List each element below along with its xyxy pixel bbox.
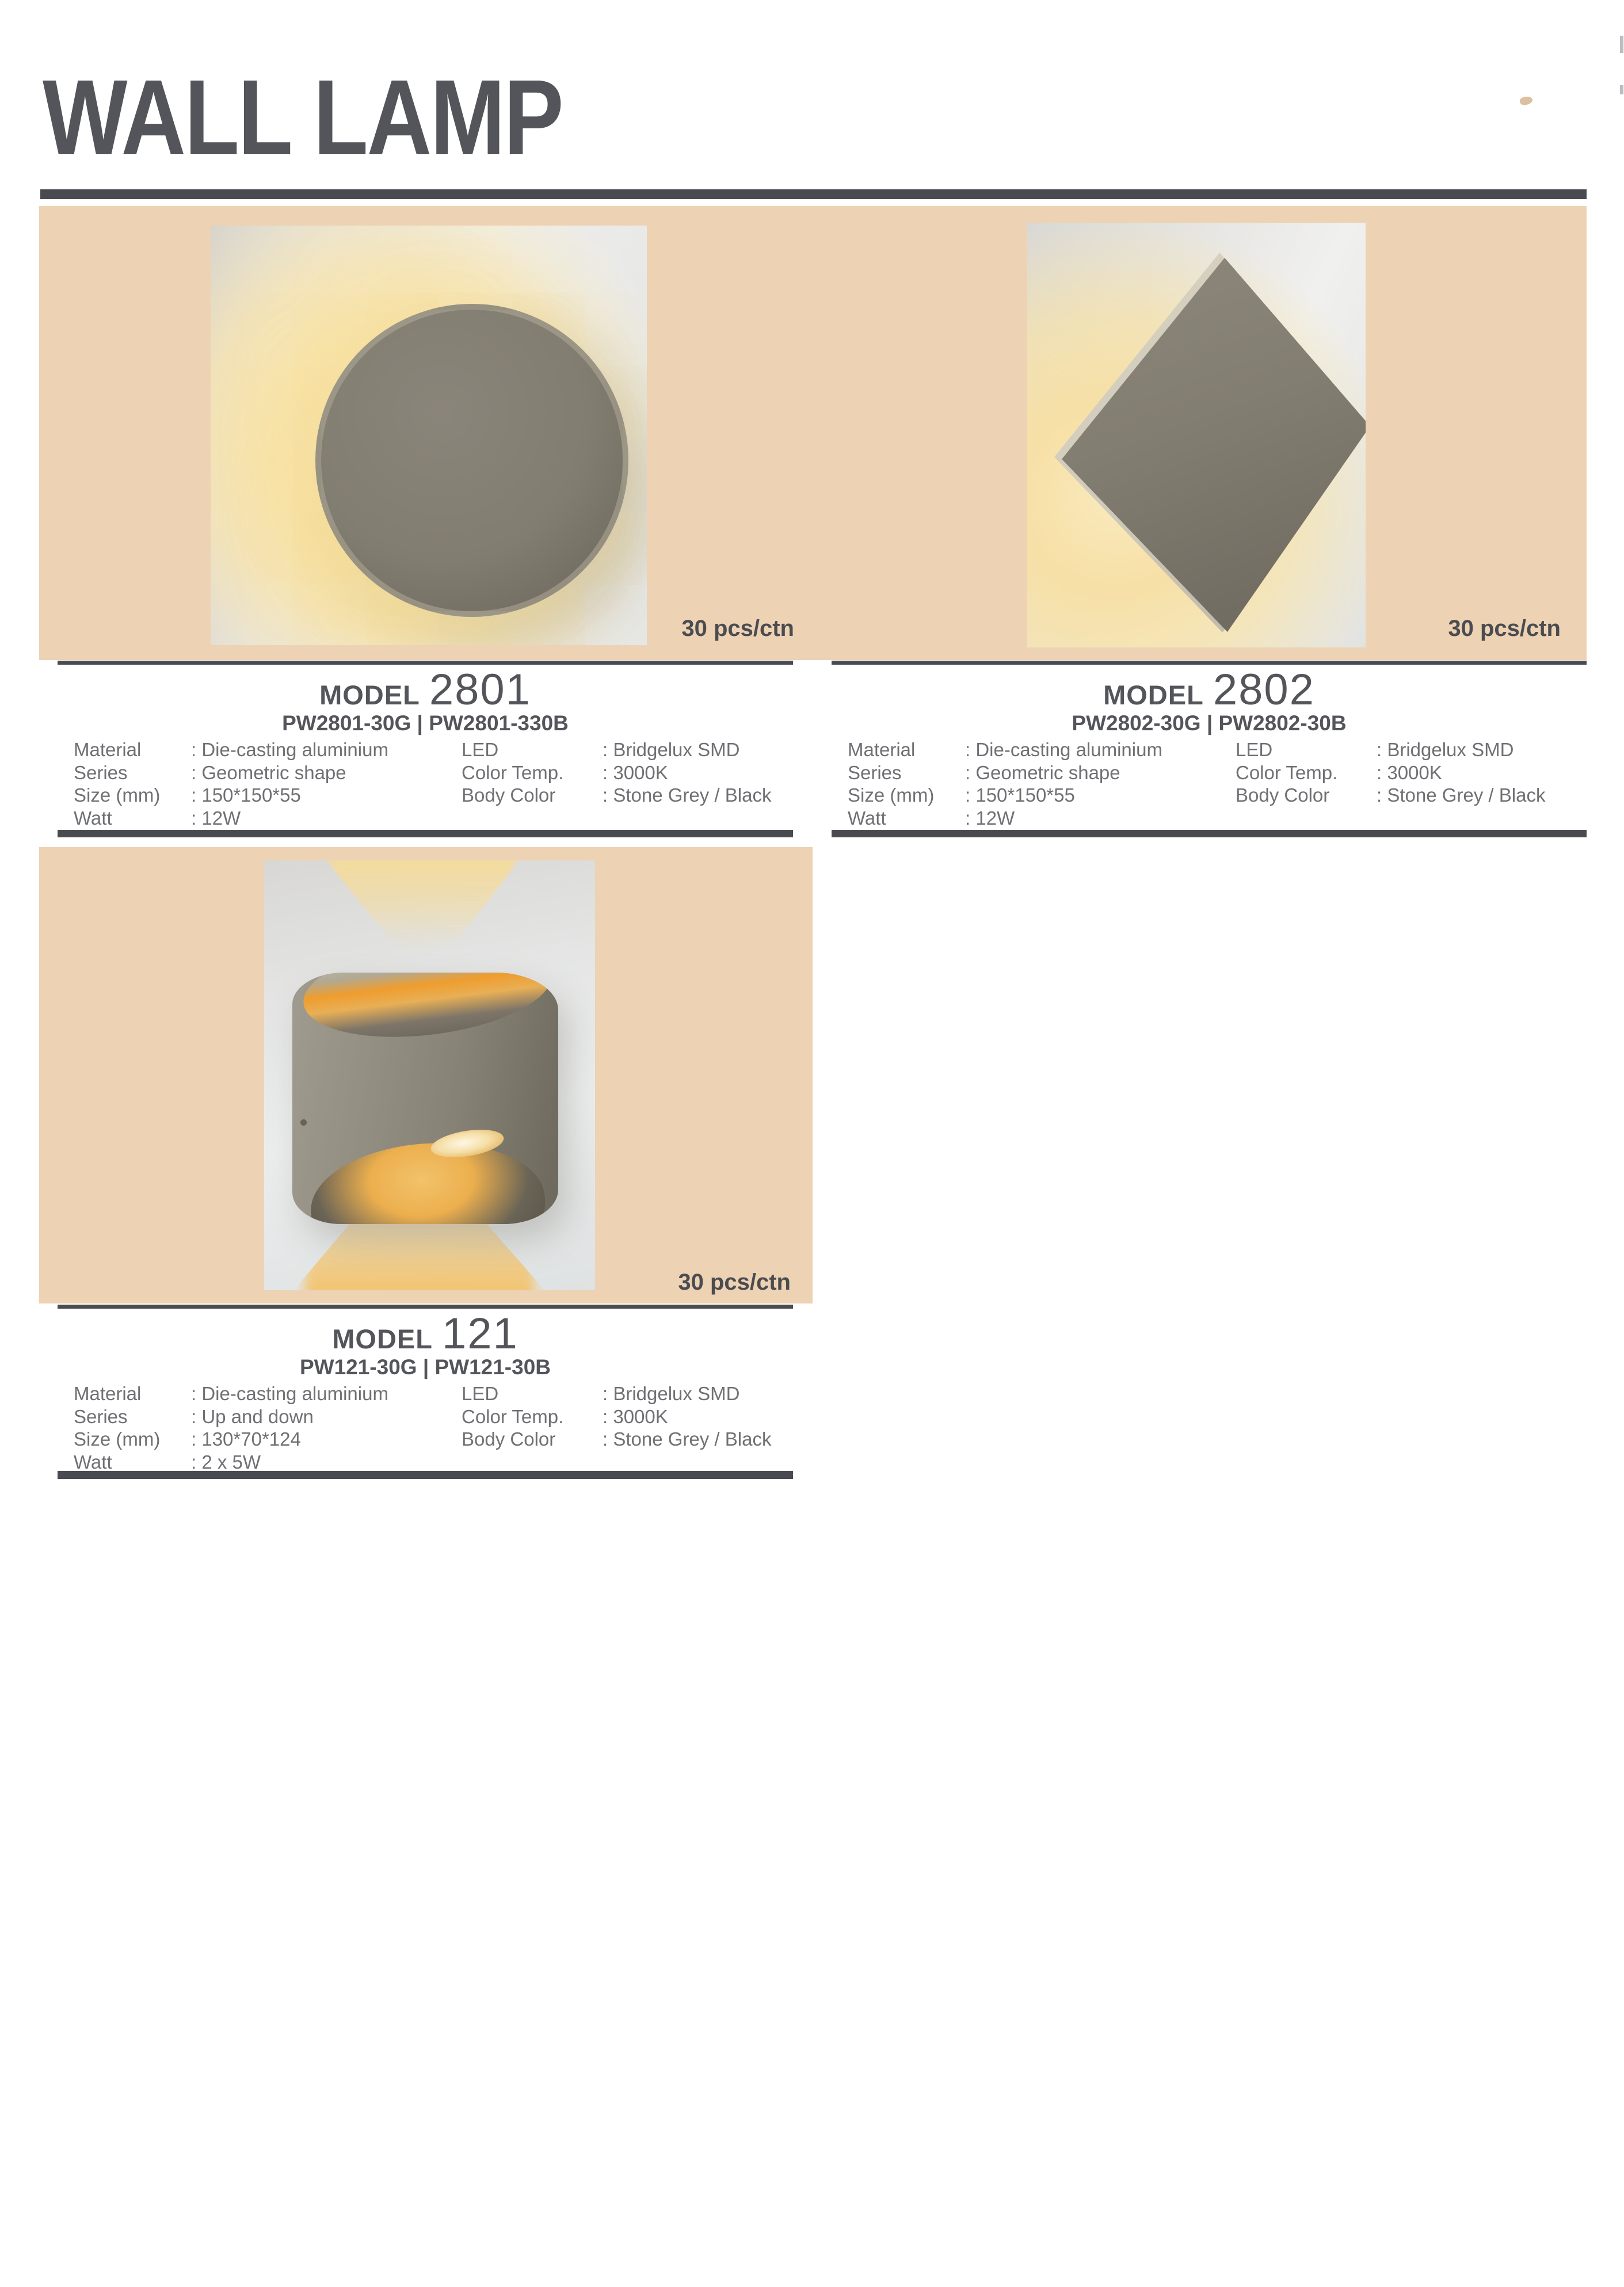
catalog-page: WALL LAMP 30 pcs/ctn 30 pcs/ctn MODEL280… <box>0 0 1624 2287</box>
spec-column-left: Material: Die-casting aluminium Series: … <box>832 738 1236 829</box>
packing-label-2801: 30 pcs/ctn <box>681 616 794 642</box>
spec-grid: Material: Die-casting aluminium Series: … <box>832 738 1587 829</box>
disc-lamp-image <box>315 304 628 617</box>
lamp-bottom-opening <box>307 1135 548 1224</box>
spec-column-left: Material: Die-casting aluminium Series: … <box>58 1382 462 1473</box>
scan-speck <box>1519 95 1534 106</box>
banner-row2 <box>39 847 813 1303</box>
spec-row: Watt: 2 x 5W <box>74 1451 462 1474</box>
model-word: MODEL <box>332 1324 433 1354</box>
spec-row: LED: Bridgelux SMD <box>462 1382 793 1405</box>
spec-row: Size (mm): 150*150*55 <box>74 784 462 807</box>
spec-row: Color Temp.: 3000K <box>1236 761 1587 784</box>
spec-column-right: LED: Bridgelux SMD Color Temp.: 3000K Bo… <box>462 738 793 829</box>
page-title: WALL LAMP <box>43 64 562 171</box>
diamond-lamp-image <box>1054 253 1366 632</box>
spec-grid: Material: Die-casting aluminium Series: … <box>58 1382 793 1473</box>
spec-row: Color Temp.: 3000K <box>462 1405 793 1428</box>
title-rule <box>40 189 1587 199</box>
model-title: MODEL2801 <box>58 668 793 712</box>
spec-block-121: MODEL121 PW121-30G | PW121-30B Material:… <box>58 1310 793 1473</box>
model-title: MODEL121 <box>58 1312 793 1356</box>
spec-row: Body Color: Stone Grey / Black <box>1236 784 1587 807</box>
model-number: 121 <box>442 1309 519 1358</box>
spec-row: Series: Geometric shape <box>848 761 1236 784</box>
product-photo-2802 <box>1027 223 1366 647</box>
product-photo-2801 <box>211 226 647 645</box>
uplight-glow <box>327 860 517 947</box>
banner-row1 <box>39 206 1587 660</box>
lamp-top-opening <box>298 973 558 1050</box>
model-codes: PW121-30G | PW121-30B <box>58 1356 793 1379</box>
spec-row: Color Temp.: 3000K <box>462 761 793 784</box>
spec-rule-top-121 <box>58 1305 793 1309</box>
spec-rule-top-2802 <box>832 661 1587 665</box>
edge-artifact <box>1620 85 1623 94</box>
spec-row: Series: Up and down <box>74 1405 462 1428</box>
spec-block-2802: MODEL2802 PW2802-30G | PW2802-30B Materi… <box>832 666 1587 829</box>
model-word: MODEL <box>319 680 420 710</box>
model-title: MODEL2802 <box>832 668 1587 712</box>
spec-row: Watt: 12W <box>74 807 462 830</box>
spec-row: Material: Die-casting aluminium <box>74 1382 462 1405</box>
spec-rule-top-2801 <box>58 661 793 665</box>
spec-row: Size (mm): 150*150*55 <box>848 784 1236 807</box>
model-number: 2801 <box>429 665 531 714</box>
spec-row: Body Color: Stone Grey / Black <box>462 784 793 807</box>
spec-rule-bottom-2801 <box>58 830 793 837</box>
model-word: MODEL <box>1103 680 1204 710</box>
spec-block-2801: MODEL2801 PW2801-30G | PW2801-330B Mater… <box>58 666 793 829</box>
spec-column-right: LED: Bridgelux SMD Color Temp.: 3000K Bo… <box>462 1382 793 1473</box>
spec-column-right: LED: Bridgelux SMD Color Temp.: 3000K Bo… <box>1236 738 1587 829</box>
spec-column-left: Material: Die-casting aluminium Series: … <box>58 738 462 829</box>
spec-row: LED: Bridgelux SMD <box>462 738 793 761</box>
spec-row: Size (mm): 130*70*124 <box>74 1428 462 1451</box>
model-number: 2802 <box>1213 665 1315 714</box>
spec-row: Watt: 12W <box>848 807 1236 830</box>
screw-dot <box>300 1119 307 1126</box>
diamond-face <box>1062 258 1366 632</box>
updown-lamp-image <box>292 973 558 1224</box>
packing-label-2802: 30 pcs/ctn <box>1448 616 1561 642</box>
edge-artifact <box>1620 36 1623 53</box>
spec-row: Series: Geometric shape <box>74 761 462 784</box>
spec-rule-bottom-2802 <box>832 830 1587 837</box>
model-codes: PW2802-30G | PW2802-30B <box>832 712 1587 735</box>
spec-row: Body Color: Stone Grey / Black <box>462 1428 793 1451</box>
packing-label-121: 30 pcs/ctn <box>678 1270 791 1295</box>
product-photo-121 <box>264 860 595 1290</box>
spec-row: Material: Die-casting aluminium <box>74 738 462 761</box>
spec-row: Material: Die-casting aluminium <box>848 738 1236 761</box>
model-codes: PW2801-30G | PW2801-330B <box>58 712 793 735</box>
spec-row: LED: Bridgelux SMD <box>1236 738 1587 761</box>
spec-grid: Material: Die-casting aluminium Series: … <box>58 738 793 829</box>
